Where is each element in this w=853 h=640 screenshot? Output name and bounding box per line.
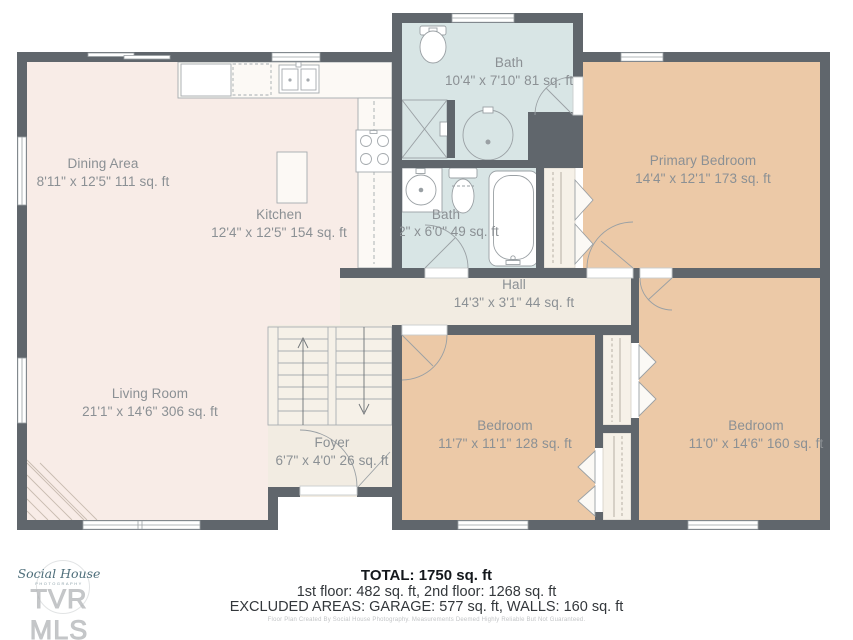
room-name: Hall [454, 276, 575, 294]
floor-closet-top [603, 335, 631, 425]
room-dims: 11'0" x 14'6" 160 sq. ft [689, 435, 824, 453]
room-name: Dining Area [37, 155, 170, 173]
summary-floors: 1st floor: 482 sq. ft, 2nd floor: 1268 s… [0, 584, 853, 600]
window-left-living [18, 358, 26, 423]
room-name: Primary Bedroom [635, 152, 771, 170]
window-bottom-bedroom-left [458, 521, 528, 529]
counter-right [358, 98, 392, 268]
summary-disclaimer: Floor Plan Created By Social House Photo… [0, 617, 853, 623]
stairs [268, 327, 392, 425]
floor-closet-bottom [603, 433, 631, 520]
watermark: Social House PHOTOGRAPHY TVR MLS [6, 556, 112, 634]
room-dims: 14'4" x 12'1" 173 sq. ft [635, 170, 771, 188]
room-dims: 11'7" x 11'1" 128 sq. ft [438, 435, 572, 453]
room-label-kitchen: Kitchen 12'4" x 12'5" 154 sq. ft [211, 206, 347, 242]
window-kitchen [272, 53, 320, 61]
kitchen-sink-icon [279, 62, 319, 93]
room-label-primary-bedroom: Primary Bedroom 14'4" x 12'1" 173 sq. ft [635, 152, 771, 188]
floor-closet-primary [544, 168, 575, 268]
room-label-bedroom-right: Bedroom 11'0" x 14'6" 160 sq. ft [689, 417, 824, 453]
bathtub-icon [489, 171, 538, 266]
room-label-bedroom-left: Bedroom 11'7" x 11'1" 128 sq. ft [438, 417, 572, 453]
room-label-bath-main-dims: 8'2" x 6'0" 49 sq. ft [400, 224, 508, 241]
room-name: Bath [432, 206, 460, 224]
watermark-logo-script: Social House [6, 566, 112, 581]
floor-plan-page: Dining Area 8'11" x 12'5" 111 sq. ft Kit… [0, 0, 853, 640]
room-dims: 8'2" x 6'0" 49 sq. ft [400, 224, 499, 240]
window-bottom-bedroom-right [688, 521, 758, 529]
room-name: Kitchen [211, 206, 347, 224]
summary-total: TOTAL: 1750 sq. ft [0, 567, 853, 584]
room-dims: 8'11" x 12'5" 111 sq. ft [37, 173, 170, 191]
toilet-icon-upper [420, 26, 446, 63]
window-bottom-living [83, 521, 200, 529]
room-dims: 12'4" x 12'5" 154 sq. ft [211, 224, 347, 242]
room-label-foyer: Foyer 6'7" x 4'0" 26 sq. ft [276, 434, 389, 470]
window-bath-upper [452, 14, 514, 22]
room-name: Bath [445, 54, 573, 72]
room-name: Bedroom [438, 417, 572, 435]
summary-excluded-areas: EXCLUDED AREAS: GARAGE: 577 sq. ft, WALL… [0, 599, 853, 615]
watermark-mls-text: TVR MLS [6, 584, 112, 640]
stove-icon [356, 130, 392, 172]
window-left-dining [18, 137, 26, 205]
room-dims: 21'1" x 14'6" 306 sq. ft [82, 403, 218, 421]
room-dims: 14'3" x 3'1" 44 sq. ft [454, 294, 575, 312]
room-label-bath-upper: Bath 10'4" x 7'10" 81 sq. ft [445, 54, 573, 90]
room-dims: 6'7" x 4'0" 26 sq. ft [276, 452, 389, 470]
floor-plan-drawing [0, 0, 853, 640]
floor-bedroom-right [639, 278, 820, 520]
room-label-hall: Hall 14'3" x 3'1" 44 sq. ft [454, 276, 575, 312]
room-name: Foyer [276, 434, 389, 452]
room-label-dining-area: Dining Area 8'11" x 12'5" 111 sq. ft [37, 155, 170, 191]
room-name: Bedroom [689, 417, 824, 435]
fridge-icon [181, 64, 231, 96]
window-primary-bedroom [621, 53, 663, 61]
room-label-bath-main: Bath [432, 206, 460, 224]
room-label-living-room: Living Room 21'1" x 14'6" 306 sq. ft [82, 385, 218, 421]
room-name: Living Room [82, 385, 218, 403]
kitchen-island [277, 152, 307, 203]
room-dims: 10'4" x 7'10" 81 sq. ft [445, 72, 573, 90]
exterior-porch-notch [278, 497, 392, 520]
